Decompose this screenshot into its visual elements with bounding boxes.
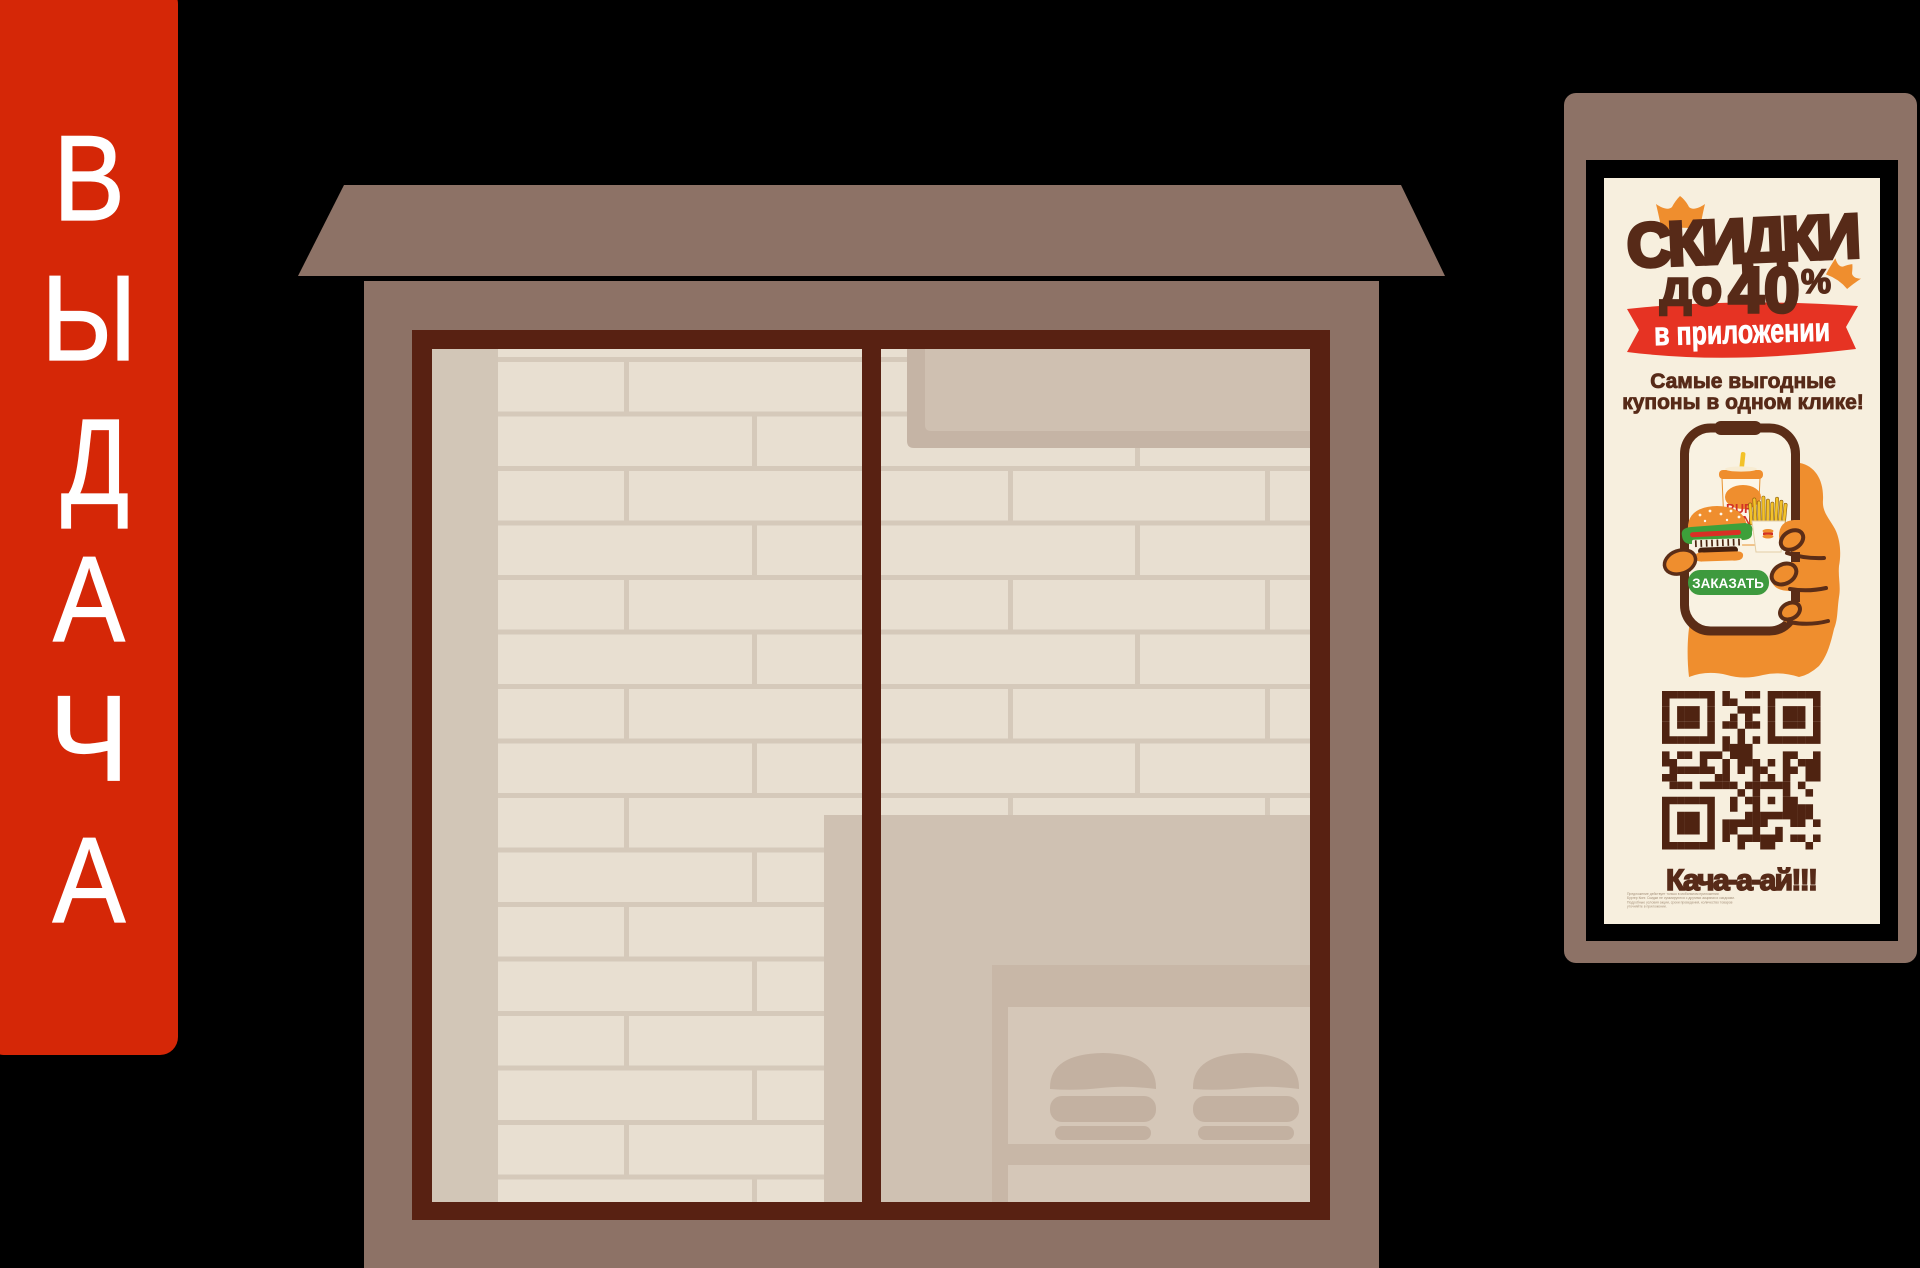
svg-text:купоны в одном клике!: купоны в одном клике! <box>1622 391 1864 414</box>
svg-text:ЗАКАЗАТЬ: ЗАКАЗАТЬ <box>1692 576 1764 591</box>
svg-text:А: А <box>53 531 126 667</box>
svg-text:уточняйте в приложении.: уточняйте в приложении. <box>1627 905 1667 909</box>
svg-text:Д: Д <box>61 394 129 530</box>
svg-text:В: В <box>53 110 125 246</box>
svg-text:Ы: Ы <box>41 250 137 386</box>
svg-text:Самые выгодные: Самые выгодные <box>1650 370 1836 393</box>
svg-text:до: до <box>1660 260 1722 316</box>
svg-text:Ч: Ч <box>49 670 129 806</box>
svg-text:%: % <box>1801 263 1831 301</box>
svg-text:А: А <box>53 812 127 948</box>
svg-text:40: 40 <box>1728 254 1799 326</box>
